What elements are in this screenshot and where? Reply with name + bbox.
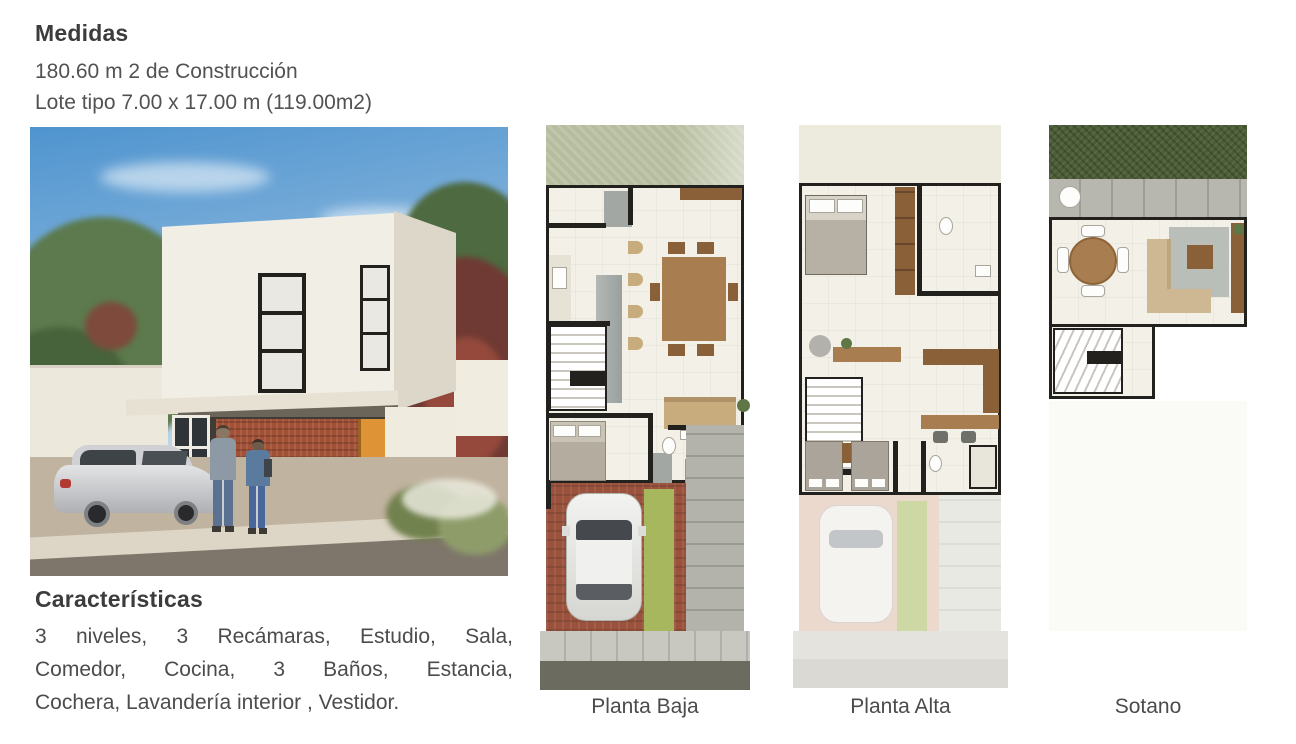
blanket (806, 220, 866, 274)
interior-wall (546, 413, 652, 418)
coffee-table (1187, 245, 1213, 269)
bar-stool (628, 337, 643, 350)
bath-sink (975, 265, 991, 277)
stone-path (686, 425, 744, 631)
faded-car-top-view (819, 505, 893, 623)
dining-chair (697, 242, 714, 254)
pillow (809, 199, 835, 213)
caracteristicas-title: Características (35, 586, 203, 613)
interior-wall (628, 185, 633, 225)
plant (737, 399, 750, 412)
faded-grass-strip (897, 501, 927, 631)
study-desk (921, 415, 999, 429)
woman-shoe (259, 528, 267, 534)
medidas-title: Medidas (35, 20, 128, 47)
lot-size-text: Lote tipo 7.00 x 17.00 m (119.00m2) (35, 87, 372, 118)
leg-gap (256, 486, 258, 528)
bar-stool (628, 241, 643, 254)
stair-wall (570, 371, 607, 386)
dining-chair (650, 283, 660, 301)
man-shoe (212, 526, 221, 532)
pillow (871, 478, 886, 488)
window-mullion (262, 349, 302, 353)
caracteristicas-line: Comedor, Cocina, 3 Baños, Estancia, (35, 653, 513, 686)
woman-shoe (248, 528, 256, 534)
closet-cabinet (983, 365, 999, 413)
toilet (662, 437, 676, 455)
man-shoe (225, 526, 234, 532)
closet-cabinet (923, 349, 999, 365)
dining-chair (697, 344, 714, 356)
shower (969, 445, 997, 489)
caracteristicas-line: 3 niveles, 3 Recámaras, Estudio, Sala, (35, 620, 513, 653)
man-head (216, 425, 230, 439)
grass-strip (644, 489, 674, 631)
floorplan-planta-alta (793, 125, 1008, 688)
car-wheel (84, 501, 110, 527)
car-body (54, 465, 222, 513)
chair (1057, 247, 1069, 273)
interior-wall (648, 413, 653, 483)
kitchen-sink (552, 267, 567, 289)
parked-car (54, 445, 222, 525)
sectional-sofa-chaise (1147, 289, 1211, 313)
faded-stone-path (939, 495, 1001, 631)
round-table (1069, 237, 1117, 285)
faded-sidewalk (793, 631, 1008, 659)
garage-wall-stub (546, 483, 551, 509)
floorplan-sotano (1043, 125, 1253, 685)
faded-garden-strip (799, 125, 1001, 183)
bed (805, 441, 843, 491)
toilet (929, 455, 942, 472)
interior-wall (917, 291, 1001, 296)
plant (841, 338, 852, 349)
window-mullion (363, 298, 387, 301)
upper-window-left (258, 273, 306, 393)
bed (550, 421, 606, 481)
pillow (837, 199, 863, 213)
bar-stool (628, 273, 643, 286)
construction-area-text: 180.60 m 2 de Construcción (35, 56, 298, 87)
cloud (100, 162, 270, 192)
car-windshield (576, 520, 632, 540)
chair (1081, 225, 1105, 237)
interior-wall (893, 441, 898, 495)
kitchen-cabinets (680, 188, 742, 200)
woman-bag (264, 459, 272, 477)
window-mullion (262, 311, 302, 315)
empty-panel (1049, 401, 1247, 631)
desk-chair (961, 431, 976, 443)
man-shirt (210, 438, 236, 480)
dining-chair (668, 344, 685, 356)
house-side-wall (394, 211, 456, 411)
street (540, 661, 750, 690)
toilet (939, 217, 953, 235)
caracteristicas-paragraph: 3 niveles, 3 Recámaras, Estudio, Sala, C… (35, 620, 513, 719)
garden-strip (546, 125, 744, 185)
label-sotano: Sotano (1043, 695, 1253, 719)
pillow (854, 478, 869, 488)
label-planta-alta: Planta Alta (793, 695, 1008, 719)
blanket (551, 442, 605, 480)
pillow (825, 478, 840, 488)
interior-wall (921, 441, 926, 495)
sidewalk (540, 631, 750, 661)
dining-chair (728, 283, 738, 301)
stair-wall (1087, 351, 1121, 364)
pouf (809, 335, 831, 357)
tree-left-red-accent (85, 302, 137, 350)
dresser (842, 443, 851, 463)
car-mirror (562, 526, 570, 536)
faded-street (793, 659, 1008, 688)
media-console (1231, 223, 1244, 313)
patio-table (1059, 186, 1081, 208)
wardrobe (895, 187, 915, 295)
interior-wall (917, 183, 922, 295)
staircase (549, 325, 607, 411)
car-top-view (566, 493, 642, 621)
car-mirror (638, 526, 646, 536)
caracteristicas-line: Cochera, Lavandería interior , Vestidor. (35, 686, 513, 719)
bar-stool (628, 305, 643, 318)
pillow (578, 425, 601, 437)
garden-strip-dark (1049, 125, 1247, 179)
desk-chair (933, 431, 948, 443)
chair (1081, 285, 1105, 297)
dining-chair (668, 242, 685, 254)
vanity-desk (833, 347, 901, 362)
pillow (808, 478, 823, 488)
pillow (553, 425, 576, 437)
floorplan-planta-baja (540, 125, 750, 690)
real-estate-listing: Medidas 180.60 m 2 de Construcción Lote … (0, 0, 1296, 744)
faded-car-windshield (829, 530, 883, 548)
car-taillight (60, 479, 71, 488)
house-exterior-photo (30, 127, 508, 576)
dining-table (662, 257, 726, 341)
leg-gap (222, 480, 224, 526)
master-bed (805, 195, 867, 275)
upper-window-right (360, 265, 390, 371)
car-wheel (174, 501, 198, 525)
flower-bush (402, 479, 497, 519)
car-roof (576, 540, 632, 584)
person-man (206, 425, 240, 535)
label-planta-baja: Planta Baja (540, 695, 750, 719)
perimeter-wall-right (454, 360, 508, 436)
person-woman (244, 439, 274, 537)
interior-wall (546, 223, 606, 228)
plant (1233, 224, 1244, 235)
chair (1117, 247, 1129, 273)
window-mullion (363, 332, 387, 335)
car-rear-glass (576, 584, 632, 600)
bed (851, 441, 889, 491)
